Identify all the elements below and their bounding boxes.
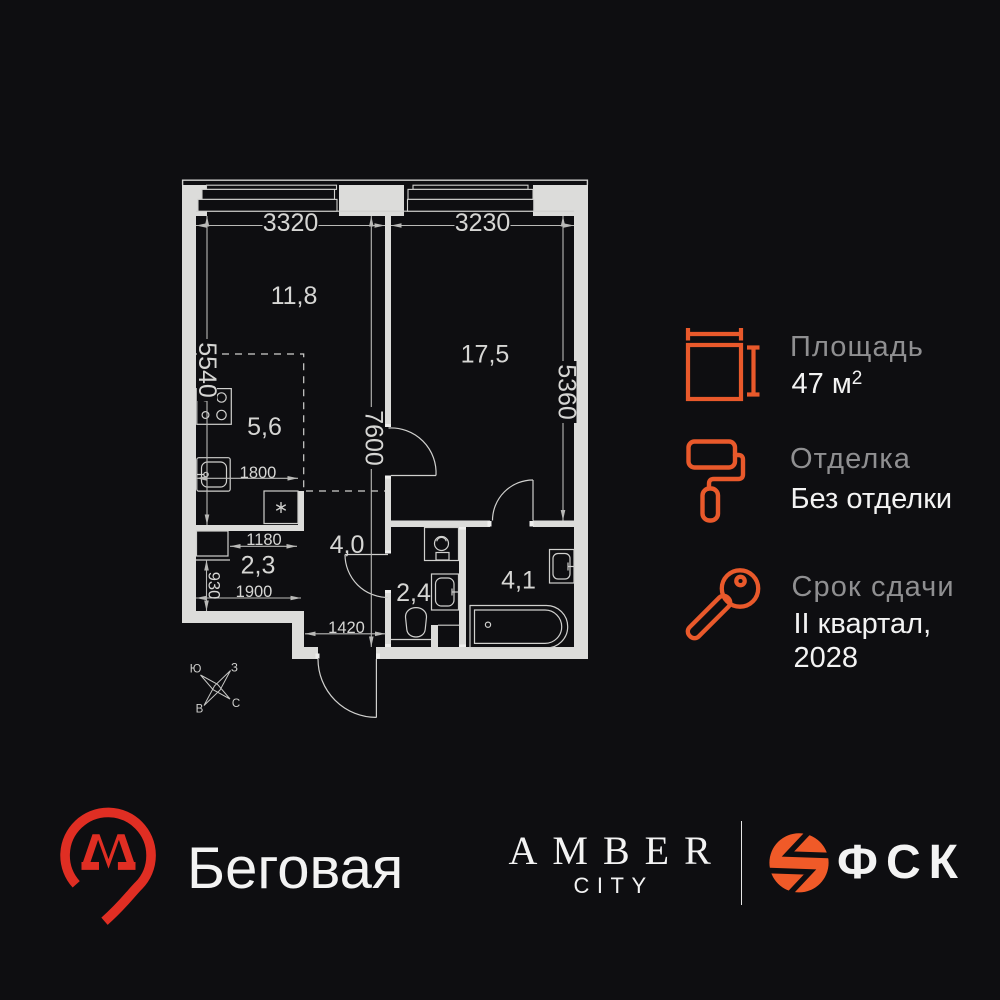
svg-text:11,8: 11,8: [271, 282, 318, 310]
svg-text:2,3: 2,3: [241, 552, 276, 580]
svg-text:5540: 5540: [193, 342, 221, 398]
svg-text:1800: 1800: [240, 464, 277, 482]
svg-text:С: С: [232, 698, 240, 710]
svg-text:3230: 3230: [455, 209, 511, 237]
svg-text:1180: 1180: [246, 531, 281, 549]
svg-text:3320: 3320: [263, 209, 319, 237]
svg-text:2,4: 2,4: [396, 579, 431, 607]
svg-text:5,6: 5,6: [247, 413, 282, 441]
svg-text:4,1: 4,1: [501, 567, 536, 595]
svg-text:З: З: [231, 663, 238, 675]
svg-text:В: В: [196, 704, 204, 716]
svg-text:5360: 5360: [553, 364, 581, 420]
svg-text:7600: 7600: [360, 410, 388, 466]
svg-text:930: 930: [205, 572, 223, 600]
svg-text:1900: 1900: [236, 583, 273, 601]
svg-text:17,5: 17,5: [461, 341, 510, 369]
svg-text:1420: 1420: [328, 619, 365, 637]
svg-text:Ю: Ю: [190, 664, 202, 676]
svg-text:4,0: 4,0: [330, 531, 365, 559]
